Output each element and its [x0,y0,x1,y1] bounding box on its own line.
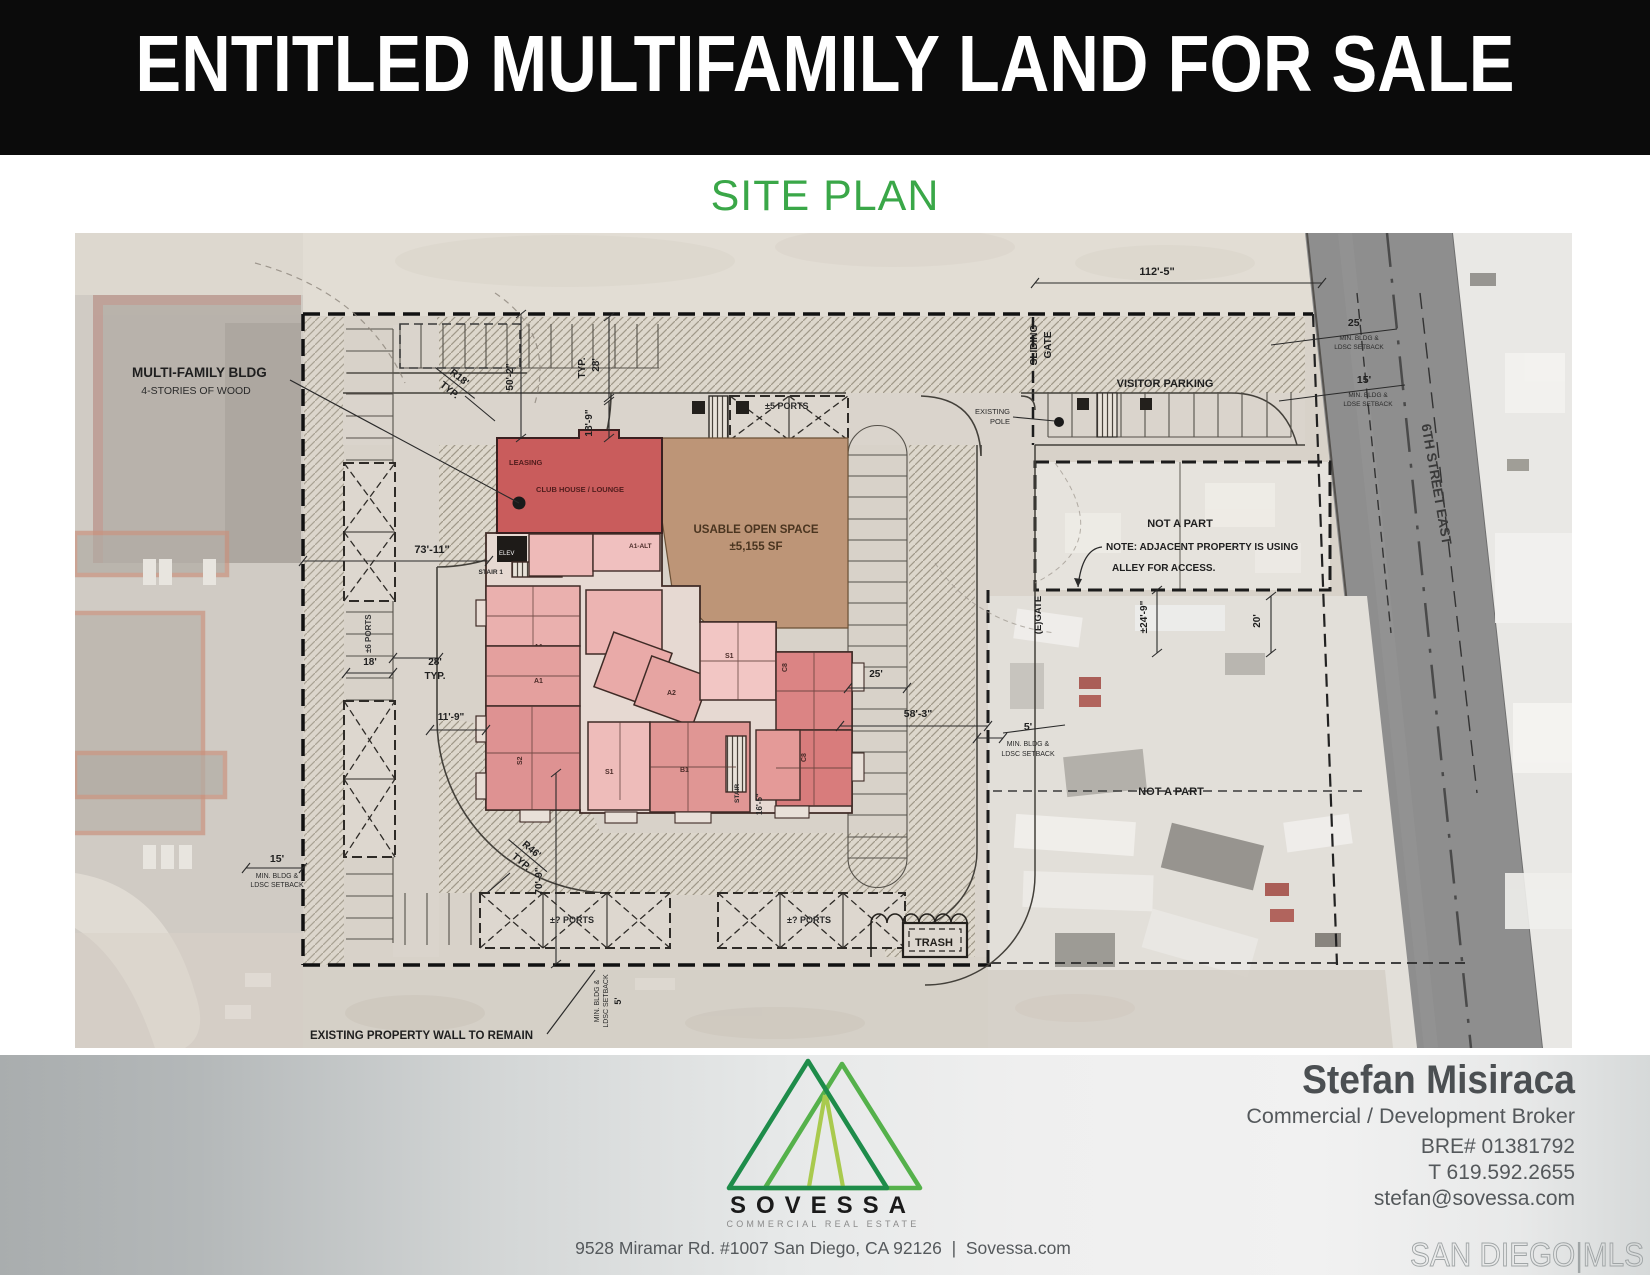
svg-text:TYP.: TYP. [425,671,446,682]
svg-text:15': 15' [1357,374,1371,386]
svg-text:28': 28' [591,358,602,372]
svg-text:S1: S1 [725,653,734,660]
svg-text:50'-2": 50'-2" [505,363,516,390]
svg-text:STAIR: STAIR [734,784,741,803]
svg-text:5': 5' [613,997,623,1004]
svg-text:POLE: POLE [990,417,1010,426]
svg-text:(E)GATE: (E)GATE [1033,596,1044,634]
svg-text:73'-11": 73'-11" [414,544,449,556]
svg-text:VISITOR PARKING: VISITOR PARKING [1117,378,1214,390]
svg-text:±? PORTS: ±? PORTS [787,915,831,925]
svg-text:S2: S2 [517,756,524,765]
svg-text:25': 25' [869,669,883,680]
svg-text:COMMERCIAL REAL ESTATE: COMMERCIAL REAL ESTATE [727,1219,920,1229]
svg-text:58'-3": 58'-3" [904,708,933,720]
svg-text:MIN. BLDG &: MIN. BLDG & [1007,741,1050,748]
svg-text:SLIDING: SLIDING [1029,325,1040,366]
svg-text:EXISTING: EXISTING [975,407,1010,416]
svg-text:ELEV: ELEV [499,551,514,557]
svg-text:LDSC SETBACK: LDSC SETBACK [250,882,304,889]
svg-text:MIN. BLDG &: MIN. BLDG & [1348,392,1388,399]
svg-text:16'-5": 16'-5" [755,793,764,815]
svg-text:A2: A2 [667,690,676,697]
svg-text:18': 18' [363,657,377,668]
svg-text:±24'-9": ±24'-9" [1139,600,1150,633]
svg-text:TYP.: TYP. [577,357,588,378]
svg-text:TRASH: TRASH [915,937,953,949]
svg-text:11'-9": 11'-9" [438,712,465,723]
svg-text:ALLEY FOR ACCESS.: ALLEY FOR ACCESS. [1112,563,1216,574]
svg-text:NOT A PART: NOT A PART [1138,786,1204,798]
svg-text:4-STORIES OF WOOD: 4-STORIES OF WOOD [141,385,251,397]
svg-text:LDSC SETBACK: LDSC SETBACK [603,974,610,1028]
svg-text:C8: C8 [782,663,789,672]
svg-text:±? PORTS: ±? PORTS [550,915,594,925]
svg-text:25': 25' [1348,317,1362,329]
svg-text:A1-ALT: A1-ALT [629,543,652,550]
svg-text:SOVESSA: SOVESSA [730,1192,916,1219]
svg-text:±5 PORTS: ±5 PORTS [765,401,808,411]
svg-text:LEASING: LEASING [509,458,543,467]
svg-text:MIN. BLDG &: MIN. BLDG & [594,979,601,1022]
svg-text:70'-9": 70'-9" [534,867,545,894]
svg-text:LDSC SETBACK: LDSC SETBACK [1334,344,1384,351]
svg-text:5': 5' [1024,721,1032,733]
svg-text:±5,155 SF: ±5,155 SF [730,541,783,553]
svg-text:USABLE OPEN SPACE: USABLE OPEN SPACE [693,524,818,536]
svg-text:MIN. BLDG &: MIN. BLDG & [1339,335,1379,342]
svg-text:18'-9": 18'-9" [584,409,595,436]
svg-text:CLUB HOUSE / LOUNGE: CLUB HOUSE / LOUNGE [536,485,624,494]
svg-text:NOT A PART: NOT A PART [1147,518,1213,530]
svg-text:GATE: GATE [1043,331,1054,358]
svg-text:S1: S1 [605,769,614,776]
svg-text:MULTI-FAMILY BLDG: MULTI-FAMILY BLDG [132,365,267,380]
svg-text:A1: A1 [534,678,543,685]
svg-text:EXISTING PROPERTY WALL TO REMA: EXISTING PROPERTY WALL TO REMAIN [310,1030,533,1042]
svg-text:20': 20' [1252,614,1263,628]
svg-text:MIN. BLDG &: MIN. BLDG & [256,873,299,880]
svg-text:±6 PORTS: ±6 PORTS [364,614,373,653]
svg-text:C8: C8 [801,753,808,762]
svg-text:LDSC SETBACK: LDSC SETBACK [1001,751,1055,758]
svg-text:NOTE: ADJACENT PROPERTY IS USI: NOTE: ADJACENT PROPERTY IS USING [1106,542,1298,553]
svg-text:LDSE SETBACK: LDSE SETBACK [1343,401,1393,408]
svg-text:STAIR 1: STAIR 1 [479,569,504,576]
svg-text:15': 15' [270,853,284,865]
svg-text:112'-5": 112'-5" [1139,266,1174,278]
